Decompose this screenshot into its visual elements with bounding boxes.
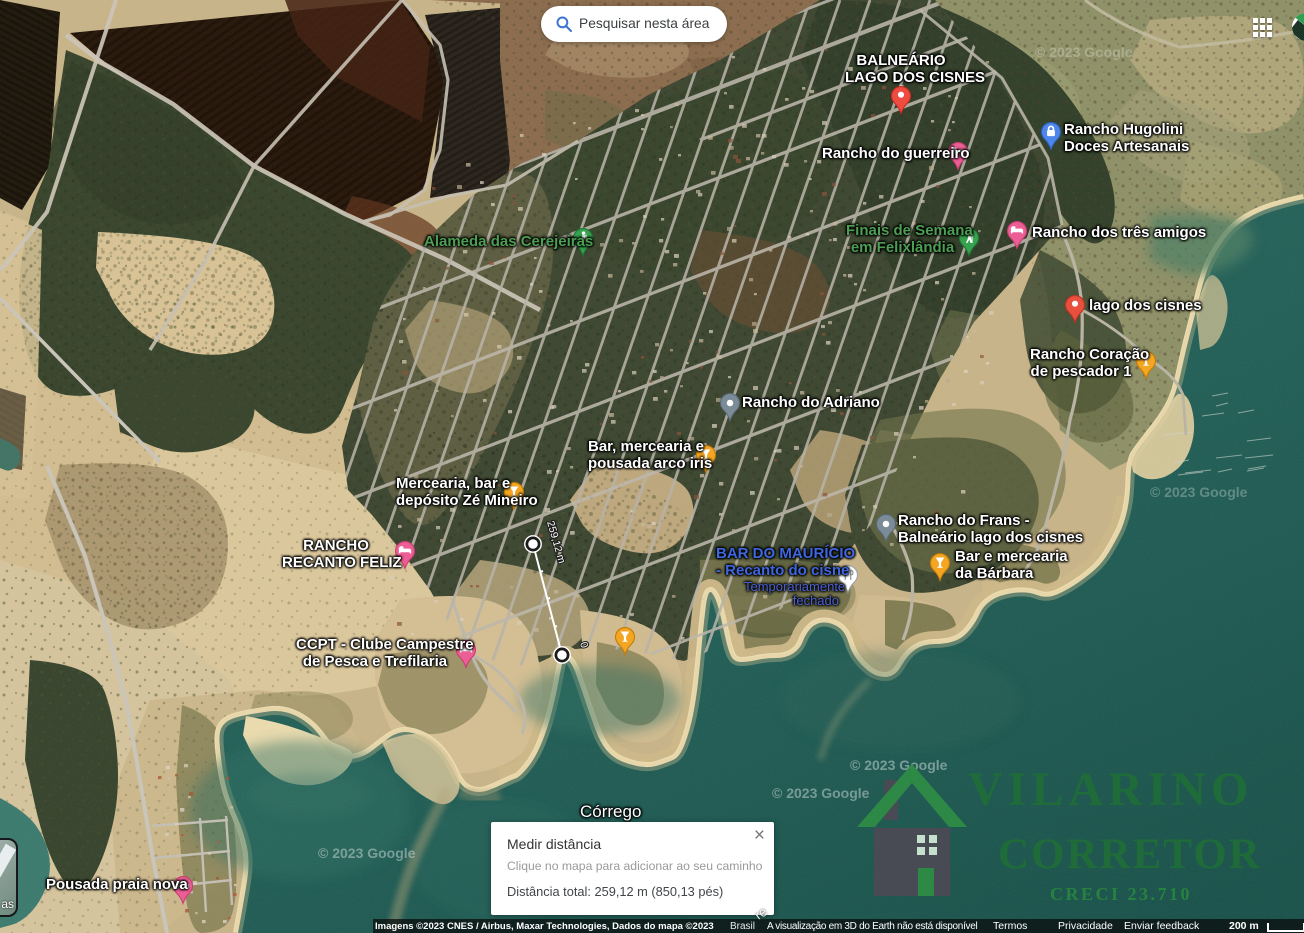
svg-text:259,12 m: 259,12 m	[544, 520, 568, 566]
svg-text:0: 0	[577, 641, 590, 650]
